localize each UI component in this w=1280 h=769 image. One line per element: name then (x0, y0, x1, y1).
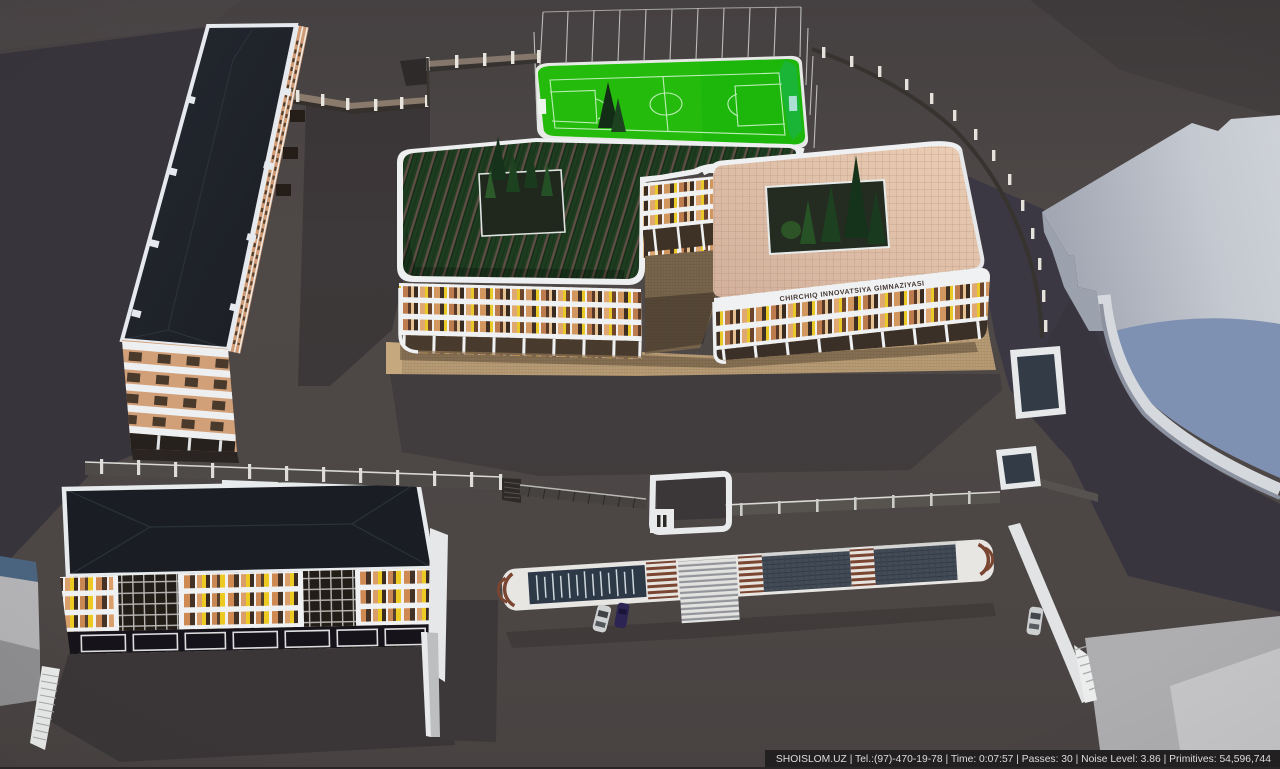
svg-text:SHOISLOM.UZ | Tel.:(97)-470-19: SHOISLOM.UZ | Tel.:(97)-470-19-78 | Time… (776, 754, 1271, 765)
